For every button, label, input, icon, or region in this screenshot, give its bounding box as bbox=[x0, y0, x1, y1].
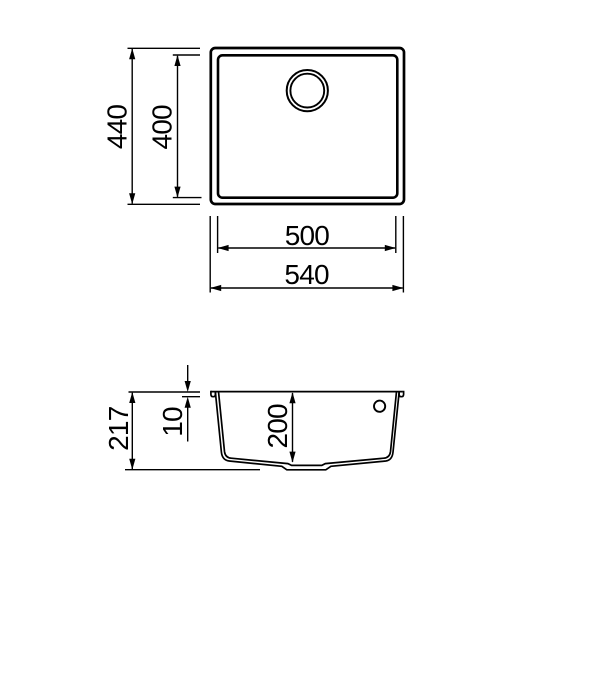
svg-text:500: 500 bbox=[285, 220, 330, 251]
svg-text:400: 400 bbox=[147, 105, 178, 150]
svg-text:440: 440 bbox=[102, 105, 133, 150]
svg-text:200: 200 bbox=[262, 404, 293, 449]
svg-text:217: 217 bbox=[103, 406, 134, 451]
svg-text:540: 540 bbox=[284, 259, 329, 290]
svg-text:10: 10 bbox=[157, 407, 188, 437]
